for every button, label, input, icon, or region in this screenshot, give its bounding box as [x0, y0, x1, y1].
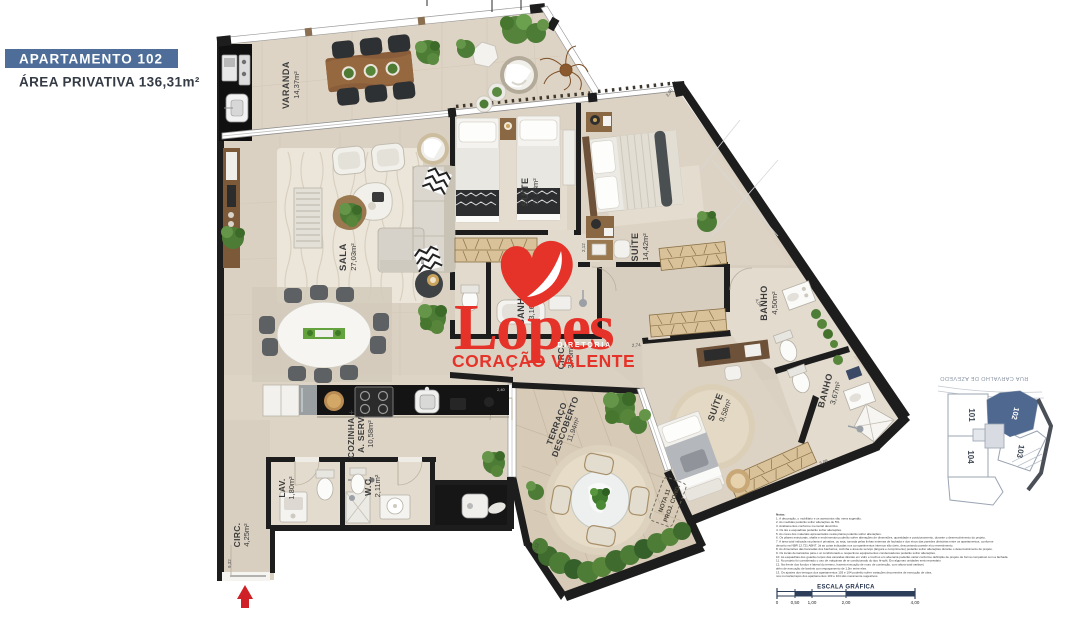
- svg-text:CIRC.: CIRC.: [232, 523, 242, 548]
- svg-text:0,50: 0,50: [791, 600, 800, 605]
- svg-text:10,58m²: 10,58m²: [366, 420, 375, 448]
- svg-text:101: 101: [967, 408, 976, 422]
- svg-text:SUÍTE: SUÍTE: [520, 177, 530, 206]
- svg-text:2,12: 2,12: [581, 243, 586, 252]
- svg-text:27,03m²: 27,03m²: [349, 243, 358, 271]
- svg-text:W.C.: W.C.: [363, 476, 373, 496]
- svg-text:2,40: 2,40: [497, 387, 506, 392]
- svg-text:14,37m²: 14,37m²: [292, 71, 301, 99]
- svg-text:ÁREA PRIVATIVA 136,31m²: ÁREA PRIVATIVA 136,31m²: [19, 75, 200, 90]
- svg-text:nos muros/terraços dos apartam: nos muros/terraços dos apartamentos 103 …: [776, 574, 878, 578]
- svg-text:104: 104: [966, 450, 975, 464]
- svg-text:SALA: SALA: [338, 243, 349, 271]
- svg-text:4,68: 4,68: [420, 259, 425, 268]
- svg-text:4,50m²: 4,50m²: [770, 291, 779, 315]
- svg-text:RUA CARVALHO DE AZEVEDO: RUA CARVALHO DE AZEVEDO: [939, 375, 1028, 381]
- svg-text:SUÍTE: SUÍTE: [630, 232, 640, 261]
- svg-text:2,00: 2,00: [842, 600, 851, 605]
- svg-text:APARTAMENTO 102: APARTAMENTO 102: [19, 52, 163, 67]
- svg-text:CORAÇÃO VALENTE: CORAÇÃO VALENTE: [452, 350, 635, 371]
- svg-text:1,80m²: 1,80m²: [287, 476, 296, 500]
- svg-text:2,11m²: 2,11m²: [373, 474, 382, 497]
- svg-text:VARANDA: VARANDA: [281, 61, 291, 109]
- svg-text:4,25m²: 4,25m²: [242, 523, 251, 547]
- svg-text:1,00: 1,00: [808, 600, 817, 605]
- svg-text:LAV.: LAV.: [277, 478, 287, 497]
- svg-text:DIRETORIA: DIRETORIA: [557, 342, 612, 349]
- svg-text:2,74: 2,74: [632, 342, 642, 348]
- svg-text:10,28m²: 10,28m²: [531, 178, 540, 206]
- svg-text:4,00: 4,00: [911, 600, 920, 605]
- svg-text:A. SERV.: A. SERV.: [356, 415, 366, 453]
- svg-text:9,32: 9,32: [227, 559, 232, 568]
- svg-text:COZINHA +: COZINHA +: [346, 410, 356, 458]
- svg-text:14,42m²: 14,42m²: [641, 233, 650, 261]
